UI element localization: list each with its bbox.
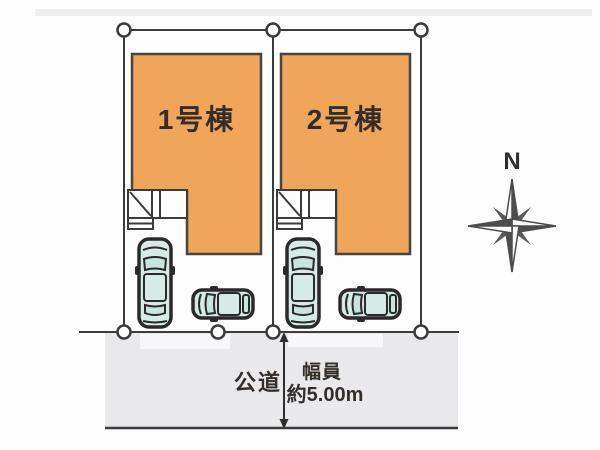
compass-rose-icon bbox=[468, 179, 556, 272]
site-plan: 1号棟 2号棟 公道 幅員 約5.00m N bbox=[0, 0, 600, 450]
building-1-entrance-porch bbox=[128, 190, 187, 229]
building-1-label: 1号棟 bbox=[132, 105, 261, 136]
survey-marker-icon bbox=[212, 326, 225, 339]
road-width-value: 約5.00m bbox=[275, 384, 375, 406]
car-icon bbox=[135, 239, 175, 327]
survey-marker-icon bbox=[415, 24, 428, 37]
building-2-entrance-porch bbox=[277, 190, 336, 229]
survey-marker-icon bbox=[118, 24, 131, 37]
car-icon bbox=[340, 286, 400, 322]
road-width-caption: 幅員 bbox=[287, 363, 357, 384]
car-icon bbox=[193, 286, 253, 322]
scan-artifact-band bbox=[35, 9, 592, 16]
compass-north-label: N bbox=[497, 149, 527, 175]
survey-marker-icon bbox=[118, 326, 131, 339]
survey-marker-icon bbox=[415, 326, 428, 339]
survey-marker-icon bbox=[267, 24, 280, 37]
survey-marker-icon bbox=[267, 326, 280, 339]
building-2-label: 2号棟 bbox=[281, 105, 410, 136]
car-icon bbox=[283, 239, 323, 327]
